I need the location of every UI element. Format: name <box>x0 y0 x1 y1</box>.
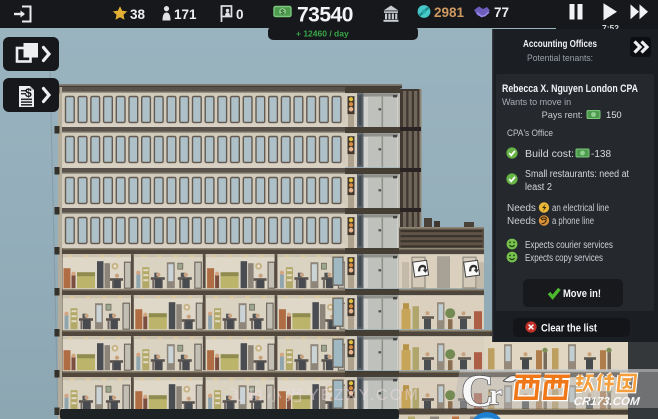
svg-text:Clear the list: Clear the list <box>541 323 597 335</box>
svg-text:CPA's Office: CPA's Office <box>507 128 553 139</box>
svg-text:0: 0 <box>236 7 244 22</box>
svg-text:171: 171 <box>174 7 197 22</box>
svg-text:Move in!: Move in! <box>563 288 601 300</box>
svg-text:least 2: least 2 <box>525 182 552 193</box>
svg-text:Needs: Needs <box>507 203 536 214</box>
svg-text:r: r <box>489 378 502 411</box>
svg-text:77: 77 <box>494 5 509 20</box>
svg-text:150: 150 <box>606 109 622 120</box>
svg-text:YEZXY.COM: YEZXY.COM <box>308 387 420 404</box>
svg-text:Wants to move in: Wants to move in <box>502 97 571 107</box>
svg-text:Potential tenants:: Potential tenants: <box>527 53 593 63</box>
svg-text:CR173.COM: CR173.COM <box>573 396 640 408</box>
svg-text:an electrical line: an electrical line <box>552 203 609 214</box>
svg-text:Expects copy services: Expects copy services <box>525 253 603 264</box>
svg-text:Needs: Needs <box>507 216 536 227</box>
svg-text:Build cost:: Build cost: <box>525 149 574 160</box>
svg-text:73540: 73540 <box>297 4 353 27</box>
svg-text:Small restaurants: need at: Small restaurants: need at <box>525 169 629 180</box>
svg-text:+ 12460 / day: + 12460 / day <box>296 29 349 39</box>
svg-text:-138: -138 <box>591 149 611 160</box>
svg-text:Accounting Offices: Accounting Offices <box>523 39 597 50</box>
svg-text:a phone line: a phone line <box>552 216 594 227</box>
svg-text:$: $ <box>25 86 32 100</box>
svg-text:38: 38 <box>130 7 146 22</box>
svg-text:Pays rent:: Pays rent: <box>542 110 583 120</box>
svg-text:Expects courier services: Expects courier services <box>525 240 613 251</box>
svg-text:Rebecca X. Nguyen London CPA: Rebecca X. Nguyen London CPA <box>502 83 638 95</box>
svg-text:2981: 2981 <box>434 5 465 20</box>
